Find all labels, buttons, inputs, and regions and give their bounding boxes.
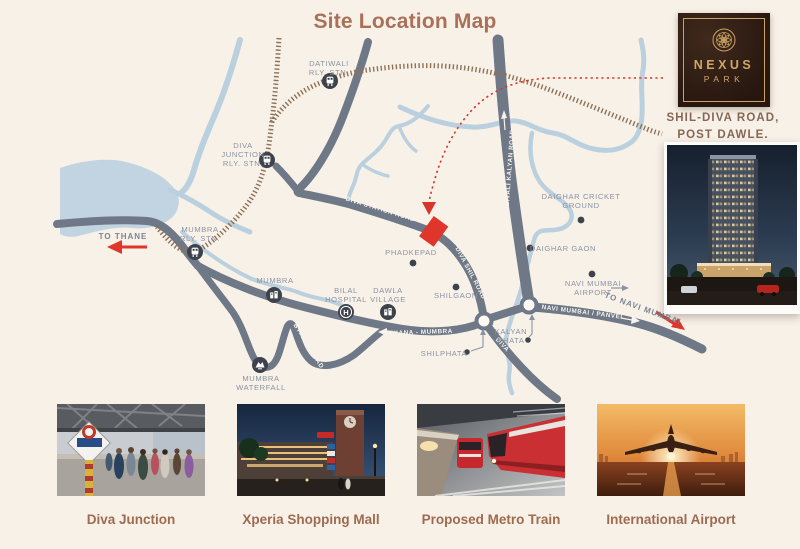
junction-circle-kalyan-phata [522,298,537,313]
label-dativali-2: RLY. STN. [309,68,349,77]
label-mumbra-village: MUMBRA [256,276,294,285]
gallery-caption-diva-junction: Diva Junction [87,512,176,527]
place-dot-kalyan-phata [525,337,531,343]
place-dot-daighar-cricket [578,217,585,224]
label-airport-1: NAVI MUMBAI [565,279,621,288]
leader-arrowhead [422,202,436,215]
waterfall-icon-mumbra [252,357,268,373]
gallery-item-diva-junction: Diva Junction [57,404,205,527]
label-waterfall-1: MUMBRA [242,374,280,383]
label-dawla-2: VILLAGE [370,295,406,304]
label-daighar-gaon: DAIGHAR GAON [530,244,596,253]
label-waterfall-2: WATERFALL [236,383,286,392]
river-north [182,40,240,192]
connector-kalyan-phata [529,318,532,337]
landmark-gallery: Diva Junction Xperia Shopping Mall [57,404,745,527]
connector-shilphata [471,333,483,351]
place-dot-shilgaon [453,284,460,291]
train-back [457,438,483,468]
project-address: SHIL-DIVA ROAD, POST DAWLE. [650,110,796,145]
logo-inner-border: NEXUS PARK [683,18,765,102]
train-station-icon-mumbra [187,244,203,260]
airport-photo [597,404,745,496]
junction-circle-shilphata [477,314,492,329]
to-thane-arrowhead [107,240,122,254]
creek-branch-2 [362,164,388,176]
label-diva-jn-3: RLY. STN. [223,159,263,168]
label-to-thane: TO THANE [99,232,148,241]
river-main-meander [400,40,644,150]
gallery-caption-airport: International Airport [606,512,735,527]
label-phadkepad: PHADKEPAD [385,248,437,257]
label-kalyan-2: PHATA [497,336,525,345]
label-shilphata: SHILPHATA [421,349,468,358]
creek-center [349,106,428,201]
place-dot-airport [589,271,596,278]
address-line-1: SHIL-DIVA ROAD, [650,110,796,127]
railway-main-line [157,38,279,252]
label-bilal-1: BILAL [334,286,358,295]
gallery-item-metro-train: Proposed Metro Train [417,404,565,527]
roads [57,40,702,399]
logo-brand-name: NEXUS [694,58,755,72]
svg-text:H: H [343,308,348,317]
label-diva-jn-1: DIVA [233,141,253,150]
building-icon-dawla-village [380,304,396,320]
xperia-mall-photo [237,404,385,496]
building-render-illustration [667,145,797,305]
building-render-photo [664,142,800,314]
nexus-park-logo: NEXUS PARK [678,13,770,107]
logo-emblem-icon [709,25,739,55]
logo-brand-sub: PARK [704,74,745,84]
airport-arrowhead [622,285,629,291]
creek-branch-1 [399,126,416,151]
hospital-icon-bilal: H [338,304,354,320]
label-diva-jn-2: JUNCTION [221,150,264,159]
label-mumbra-stn-2: RLY. STN. [180,234,220,243]
road-diva-junction-stub [276,166,297,190]
label-mumbra-stn-1: MUMBRA [181,225,219,234]
metro-train-photo [417,404,565,496]
label-dativali-1: DATIWALI [309,59,349,68]
leader-dotted-line [429,78,663,202]
gallery-item-xperia-mall: Xperia Shopping Mall [237,404,385,527]
label-bilal-2: HOSPITAL [325,295,367,304]
gallery-caption-xperia-mall: Xperia Shopping Mall [242,512,379,527]
connector-kalyan-arrowhead [529,314,535,320]
label-kalyan-1: KALYAN [495,327,527,336]
river-daighar [506,133,572,393]
road-arrow-diva-station [328,188,337,196]
diva-junction-photo [57,404,205,496]
label-shilgaon: SHILGAON [434,291,478,300]
gallery-caption-metro-train: Proposed Metro Train [422,512,561,527]
label-dawla-1: DAWLA [373,286,403,295]
road-label-thana-mumbra: THANA - MUMBRA [389,328,453,337]
gallery-item-airport: International Airport [597,404,745,527]
label-daighar-cricket-1: DAIGHAR CRICKET [541,192,620,201]
place-dot-phadkepad [410,260,417,267]
label-daighar-cricket-2: GROUND [562,201,599,210]
building-icon-mumbra-village [266,287,282,303]
